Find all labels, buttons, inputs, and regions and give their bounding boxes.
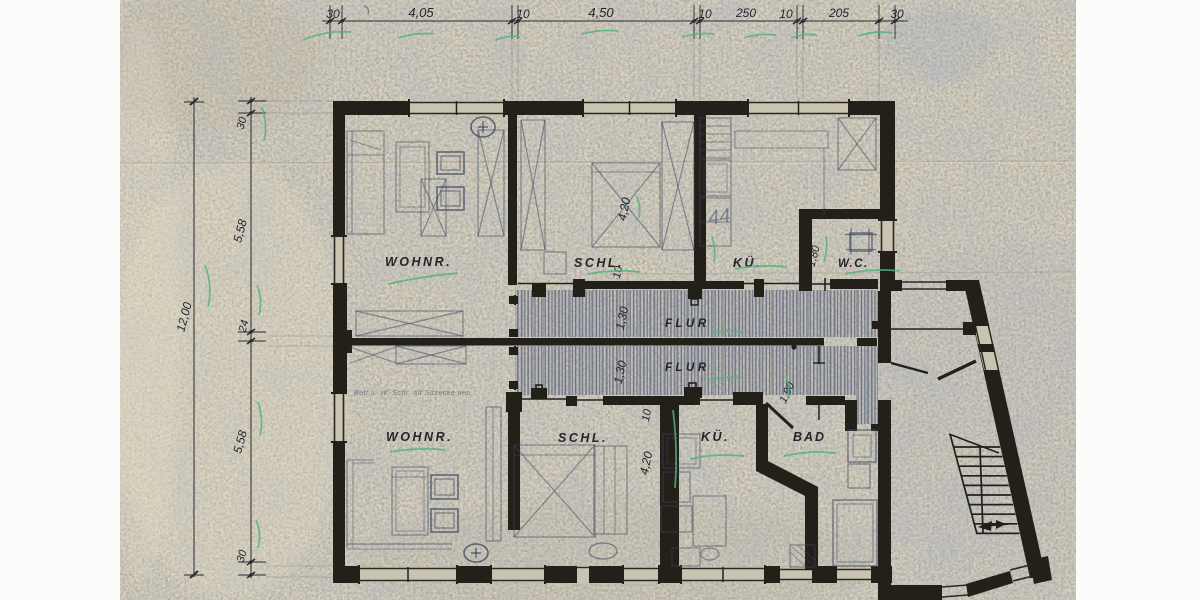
svg-text:WOHNR.: WOHNR. [386,430,453,444]
svg-text:FLUR: FLUR [665,362,710,374]
svg-text:10: 10 [779,7,793,21]
svg-text:Bett u. W.-Schr. alt Sitzecke: Bett u. W.-Schr. alt Sitzecke neu [354,390,471,397]
svg-text:SCHL.: SCHL. [558,431,608,445]
svg-text:30: 30 [326,7,340,21]
svg-text:4,05: 4,05 [408,5,434,20]
svg-text:205: 205 [828,6,849,20]
svg-text:BAD: BAD [793,430,826,444]
svg-text:FLUR: FLUR [665,318,710,330]
svg-text:10: 10 [698,7,712,21]
svg-text:30: 30 [890,7,904,21]
svg-text:10: 10 [516,7,530,21]
svg-text:W.C.: W.C. [838,258,869,270]
svg-text:KÜ.: KÜ. [701,429,730,444]
svg-text:250: 250 [735,6,756,20]
svg-text:WOHNR.: WOHNR. [385,255,452,269]
svg-text:4,50: 4,50 [588,5,614,20]
svg-text:44: 44 [707,205,732,230]
